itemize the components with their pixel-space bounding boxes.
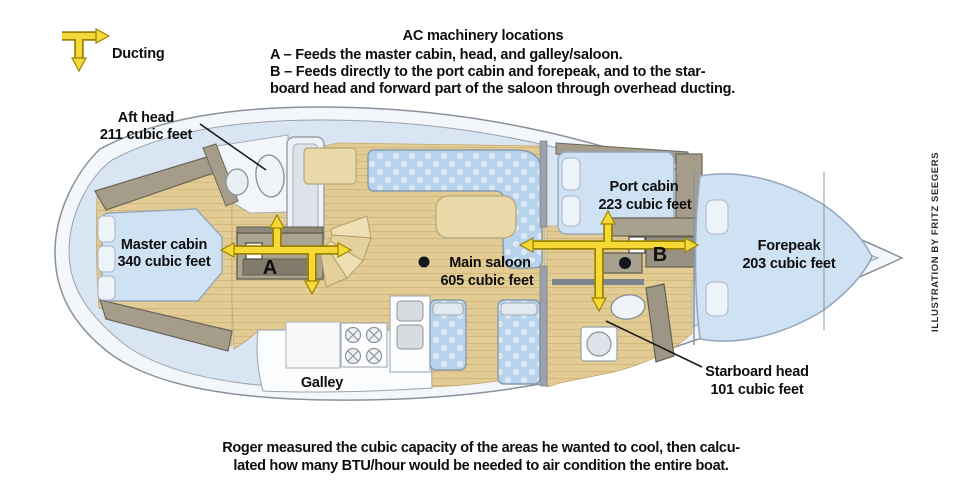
ducting-legend: Ducting [62, 29, 165, 71]
saloon-table [436, 196, 516, 238]
aft-head-sink [226, 169, 248, 195]
boat-plan-svg: Ducting AC machinery locations A – Feeds… [0, 0, 960, 483]
galley-label: Galley [301, 375, 343, 391]
header-line-b1: B – Feeds directly to the port cabin and… [270, 64, 706, 80]
bulkhead-lower [540, 266, 547, 386]
header-block: AC machinery locations A – Feeds the mas… [270, 28, 735, 97]
master-cabin-label: Master cabin [121, 237, 207, 253]
duct-arrow-right [96, 29, 109, 43]
bulkhead-upper [540, 141, 547, 227]
caption-line1: Roger measured the cubic capacity of the… [222, 440, 740, 456]
port-cabin-volume: 223 cubic feet [598, 197, 691, 213]
sink-basin [397, 301, 423, 321]
caption-line2: lated how many BTU/hour would be needed … [233, 458, 729, 474]
master-bed-pillows [98, 216, 115, 300]
galley-worktop [286, 322, 340, 368]
unit-a-label: A [263, 257, 277, 279]
saloon-bench-cap [433, 303, 463, 315]
boat-plan-illustration: Ducting AC machinery locations A – Feeds… [0, 0, 960, 483]
header-title: AC machinery locations [403, 28, 564, 44]
aft-head-label: Aft head [118, 110, 174, 126]
main-saloon-label: Main saloon [449, 255, 531, 271]
unit-b-dot [619, 257, 631, 269]
sink-basin [397, 325, 423, 349]
master-cabin-volume: 340 cubic feet [117, 254, 210, 270]
unit-b-label: B [653, 244, 667, 266]
b-cabinet [612, 218, 702, 236]
starboard-head-volume: 101 cubic feet [710, 382, 803, 398]
port-cabin-label: Port cabin [610, 179, 679, 195]
saloon-bench-cap [501, 303, 537, 315]
main-saloon-volume: 605 cubic feet [440, 273, 533, 289]
starboard-head-toilet [587, 332, 611, 356]
aft-head-volume: 211 cubic feet [100, 127, 193, 143]
main-saloon-bullet [419, 257, 430, 268]
header-line-b2: board head and forward part of the saloo… [270, 81, 735, 97]
duct-arrow-down [72, 58, 86, 71]
sideboard [304, 148, 356, 184]
starboard-head-label: Starboard head [705, 364, 809, 380]
forepeak-label: Forepeak [758, 238, 822, 254]
header-line-a: A – Feeds the master cabin, head, and ga… [270, 47, 623, 63]
forepeak-volume: 203 cubic feet [742, 256, 835, 272]
illustration-credit: ILLUSTRATION BY FRITZ SEEGERS [930, 152, 941, 332]
legend-label: Ducting [112, 46, 165, 62]
